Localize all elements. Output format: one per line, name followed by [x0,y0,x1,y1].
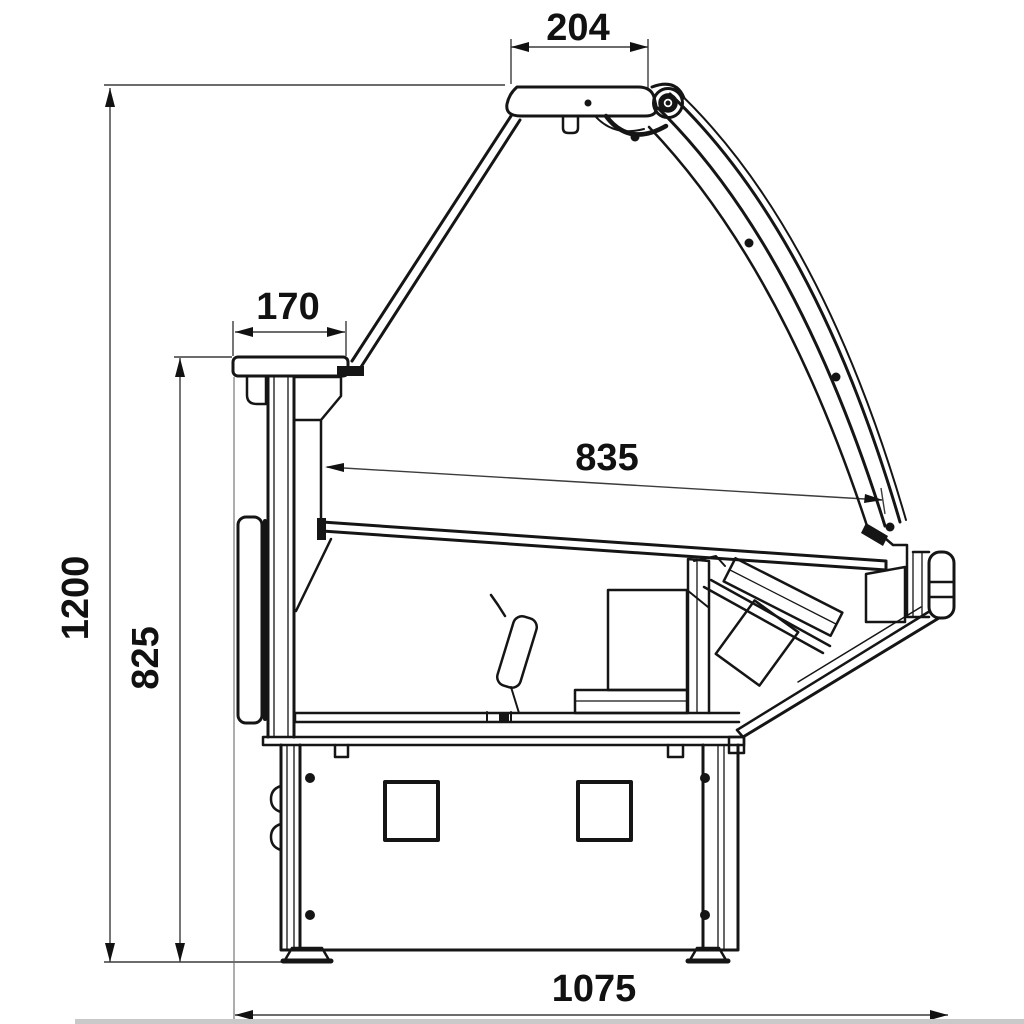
dim-label-1075: 1075 [552,968,637,1010]
bottom-crop-strip [75,1019,1024,1024]
dim-label-204: 204 [546,7,609,49]
screw-dot [631,133,640,142]
screw-dot [305,910,315,920]
dim-label-835: 835 [575,437,638,479]
dim-label-170: 170 [256,286,319,328]
floor-joint-cap [499,714,509,722]
dim-label-825: 825 [125,626,167,689]
drawing-background [0,0,1024,1024]
technical-drawing-canvas: 204 170 835 1200 825 1075 [0,0,1024,1024]
hinge-pin [666,101,671,106]
screw-dot [700,910,710,920]
screw-dot [832,373,841,382]
dim-label-1200: 1200 [55,556,97,641]
screw-dot [700,773,710,783]
deck-left-cap [317,518,326,540]
display-counter-section-drawing: 204 170 835 1200 825 1075 [0,0,1024,1024]
screw-dot [745,239,754,248]
screw-dot [886,523,895,532]
screw-dot [585,100,592,107]
screw-dot [305,773,315,783]
